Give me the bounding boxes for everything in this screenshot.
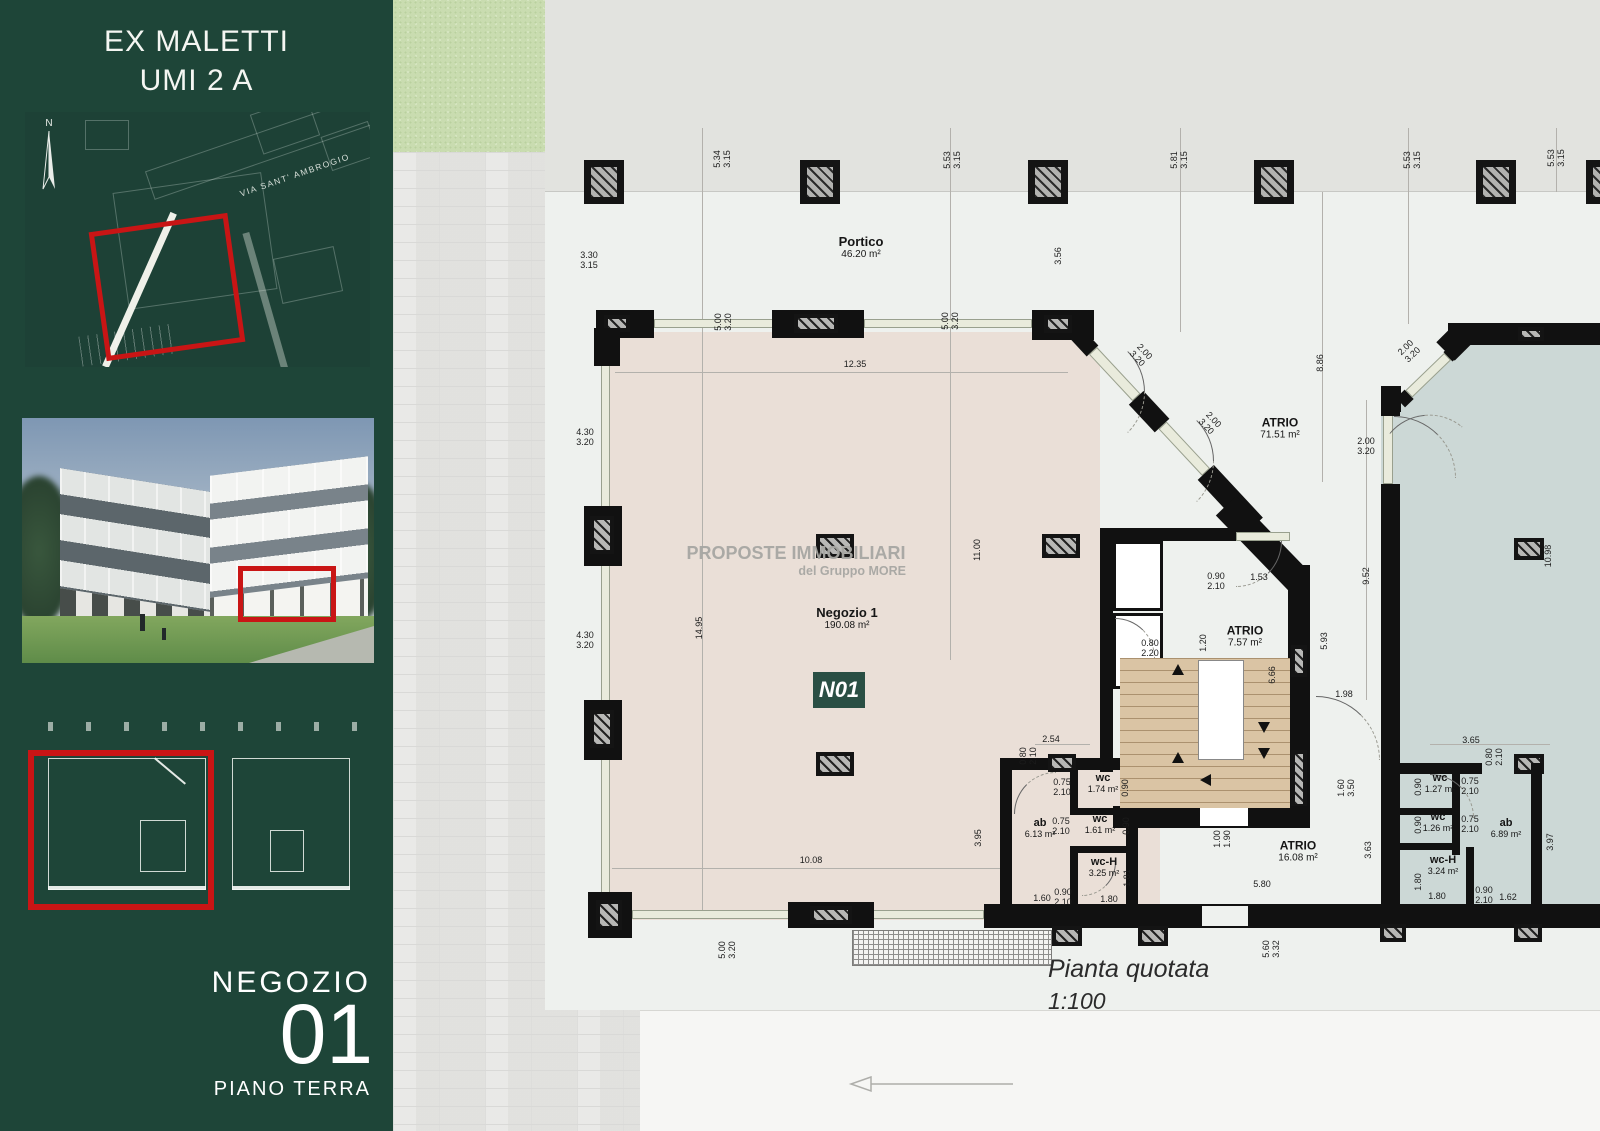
room-label: Portico46.20 m²	[839, 234, 884, 260]
site-map: N VIA SANT' AMBROGIO	[25, 112, 370, 367]
dimension-label: 1.53	[1250, 572, 1268, 582]
dimension-label: 5.00 3.20	[940, 312, 960, 330]
sidebar: EX MALETTI UMI 2 A N VIA SANT' AMBROGIO	[0, 0, 393, 1131]
room-label: ATRIO16.08 m²	[1278, 839, 1317, 864]
dimension-label: 0.75 2.10	[1052, 816, 1070, 836]
dimension-label: 3.63	[1363, 841, 1373, 859]
dimension-label: 1.80	[1100, 894, 1118, 904]
room-label: wc1.74 m²	[1088, 772, 1119, 794]
plan-thumbnail	[20, 700, 375, 920]
dimension-label: 10.08	[800, 855, 823, 865]
dimension-label: 1.60 3.50	[1336, 779, 1356, 797]
dimension-label: 1.60	[1033, 893, 1051, 903]
dimension-label: 0.90 2.10	[1475, 885, 1493, 905]
dimension-label: 0.90	[1413, 816, 1423, 834]
dimension-label: 0.80 2.10	[1484, 748, 1504, 766]
dimension-label: 6.66	[1267, 666, 1277, 684]
dimension-label: 12.35	[844, 359, 867, 369]
dimension-label: 1.62	[1499, 892, 1517, 902]
dimension-label: 0.75 2.10	[1053, 777, 1071, 797]
dimension-label: 3.56	[1053, 247, 1063, 265]
dimension-label: 3.97	[1545, 833, 1555, 851]
page-title: EX MALETTI UMI 2 A	[0, 22, 393, 100]
plan-caption: Pianta quotata 1:100	[1048, 955, 1209, 1015]
dimension-label: 3.30 3.15	[580, 250, 598, 270]
dimension-label: 0.75 2.10	[1461, 814, 1479, 834]
dimension-label: 8.86	[1315, 354, 1325, 372]
caption-scale: 1:100	[1048, 988, 1209, 1015]
dimension-label: 14.95	[694, 617, 704, 640]
title-line2: UMI 2 A	[0, 61, 393, 100]
dimension-label: 4.30 3.20	[576, 630, 594, 650]
grass-strip	[393, 0, 545, 152]
room-label: wc1.26 m²	[1423, 811, 1454, 833]
room-label: wc-H3.24 m²	[1428, 854, 1459, 876]
room-label: ATRIO71.51 m²	[1260, 416, 1299, 441]
dimension-label: 1.98	[1335, 689, 1353, 699]
caption-title: Pianta quotata	[1048, 955, 1209, 984]
dimension-label: 5.53 3.15	[942, 151, 962, 169]
dimension-label: 1.80	[1428, 891, 1446, 901]
dimension-label: 5.60 3.32	[1261, 940, 1281, 958]
site-highlight-rect	[89, 213, 246, 361]
dimension-label: 0.80 2.10	[1018, 747, 1038, 765]
building-photo	[22, 418, 374, 663]
dimension-label: 0.90	[1413, 778, 1423, 796]
photo-highlight-rect	[238, 566, 336, 622]
dimension-label: 5.34 3.15	[712, 150, 732, 168]
dimension-label: 1.20	[1198, 634, 1208, 652]
dimension-label: 10.98	[1543, 545, 1553, 568]
dimension-label: 1.00 1.90	[1212, 830, 1232, 848]
dimension-label: 2.54	[1042, 734, 1060, 744]
room-label: Negozio 1190.08 m²	[816, 605, 877, 631]
unit-number: 01	[280, 992, 373, 1076]
dimension-label: 4.30 3.20	[576, 427, 594, 447]
thumbnail-highlight-rect	[28, 750, 214, 910]
title-line1: EX MALETTI	[0, 22, 393, 61]
compass-north-icon: N	[39, 118, 59, 194]
dimension-label: 0.80 2.20	[1141, 638, 1159, 658]
direction-arrow-icon	[845, 1073, 1015, 1095]
floor-level-label: PIANO TERRA	[214, 1078, 371, 1101]
watermark-line1: PROPOSTE IMMOBILIARI	[686, 543, 906, 564]
dimension-label: 0.90 2.10	[1207, 571, 1225, 591]
negozio1-floor	[606, 332, 1160, 920]
dimension-label: 5.53 3.15	[1402, 151, 1422, 169]
room-label: wc-H3.25 m²	[1089, 856, 1120, 878]
dimension-label: 9.52	[1361, 567, 1371, 585]
dimension-label: 3.65	[1462, 735, 1480, 745]
dimension-label: 1.80	[1413, 873, 1423, 891]
room-label: wc1.27 m²	[1425, 772, 1456, 794]
dimension-label: 5.93	[1319, 632, 1329, 650]
dimension-label: 5.81 3.15	[1169, 151, 1189, 169]
road-area	[640, 1010, 1600, 1131]
room-label: ab6.89 m²	[1491, 817, 1522, 839]
room-label: wc1.61 m²	[1085, 813, 1116, 835]
dimension-label: 5.80	[1253, 879, 1271, 889]
dimension-label: 0.90	[1121, 817, 1131, 835]
watermark-line2: del Gruppo MORE	[686, 564, 906, 578]
dimension-label: 5.53 3.15	[1546, 149, 1566, 167]
dimension-label: 0.90	[1120, 779, 1130, 797]
floor-grate	[852, 930, 1052, 966]
room-label: ab6.13 m²	[1025, 817, 1056, 839]
dimension-label: 2.00 3.20	[1357, 436, 1375, 456]
dimension-label: 1.81	[1122, 869, 1132, 887]
brochure-page: PROPOSTE IMMOBILIARI del Gruppo MORE N01…	[0, 0, 1600, 1131]
dimension-label: 0.75 2.10	[1461, 776, 1479, 796]
dimension-label: 0.90 2.10	[1054, 887, 1072, 907]
dimension-label: 5.00 3.20	[717, 941, 737, 959]
sidewalk-band	[545, 0, 1600, 192]
room-label: ATRIO7.57 m²	[1227, 624, 1263, 649]
dimension-label: 5.00 3.20	[713, 313, 733, 331]
dimension-label: 11.00	[972, 539, 982, 561]
unit-tag: N01	[813, 672, 865, 708]
watermark: PROPOSTE IMMOBILIARI del Gruppo MORE	[686, 543, 906, 578]
dimension-label: 3.95	[973, 829, 983, 847]
